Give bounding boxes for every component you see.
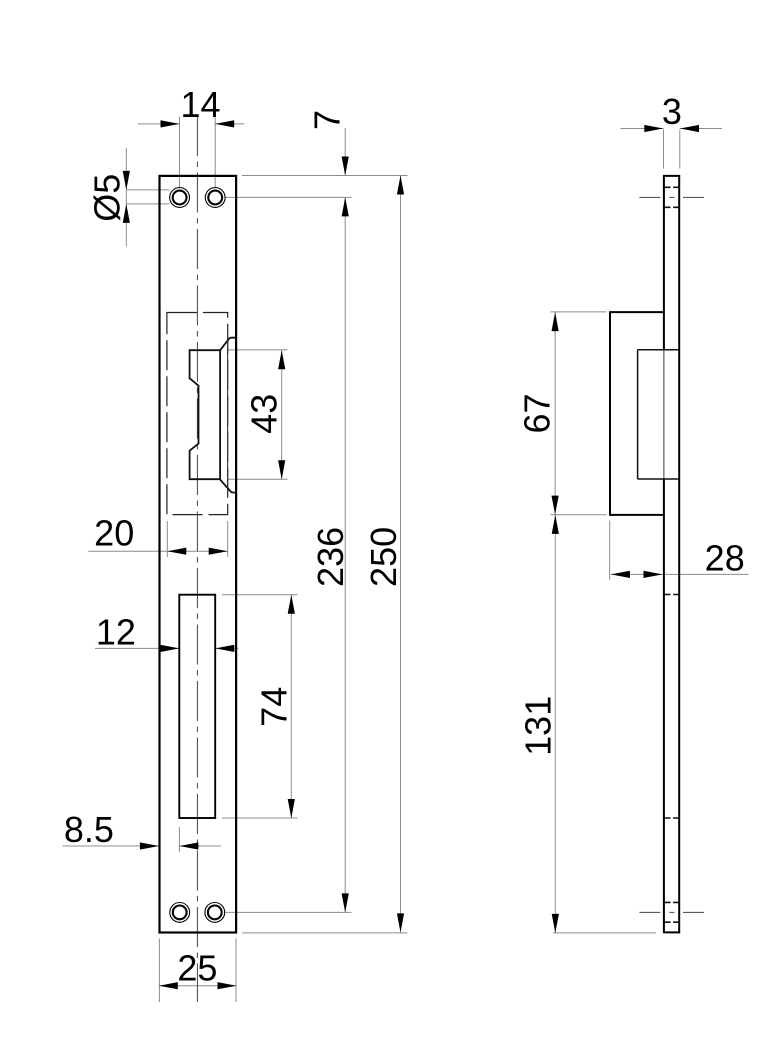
svg-text:8.5: 8.5 <box>64 809 114 850</box>
svg-text:25: 25 <box>177 948 217 989</box>
svg-text:74: 74 <box>254 687 295 727</box>
svg-text:7: 7 <box>307 110 348 130</box>
svg-text:12: 12 <box>96 611 136 652</box>
svg-text:250: 250 <box>363 527 404 587</box>
svg-text:14: 14 <box>180 84 220 125</box>
svg-text:43: 43 <box>244 394 285 434</box>
svg-text:3: 3 <box>662 91 682 132</box>
svg-text:131: 131 <box>518 696 559 756</box>
svg-text:28: 28 <box>705 538 745 579</box>
svg-text:236: 236 <box>310 527 351 587</box>
svg-text:67: 67 <box>517 393 558 433</box>
svg-text:Ø5: Ø5 <box>87 174 128 222</box>
svg-text:20: 20 <box>94 513 134 554</box>
